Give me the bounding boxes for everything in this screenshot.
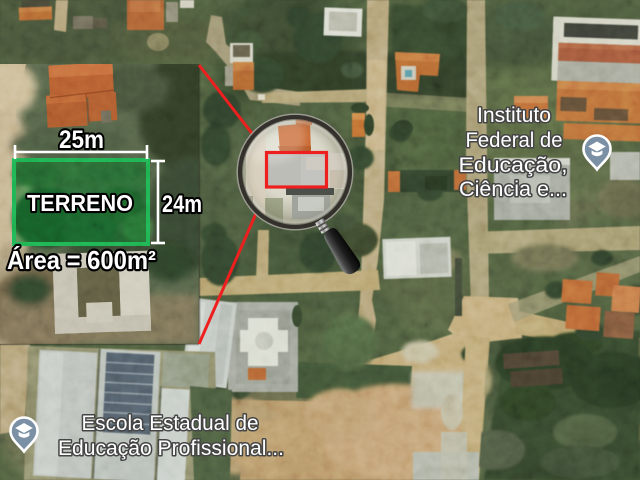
svg-text:Educação,: Educação, <box>459 153 568 177</box>
svg-text:Educação Profissional...: Educação Profissional... <box>58 436 284 460</box>
svg-text:24m: 24m <box>162 191 202 218</box>
svg-text:Escola Estadual de: Escola Estadual de <box>82 411 259 435</box>
svg-text:TERRENO: TERRENO <box>27 190 133 216</box>
svg-text:Área = 600m²: Área = 600m² <box>7 245 156 275</box>
svg-text:Ciência e...: Ciência e... <box>459 177 567 201</box>
svg-text:25m: 25m <box>59 126 104 154</box>
svg-text:Federal de: Federal de <box>466 128 563 152</box>
svg-text:Instituto: Instituto <box>477 103 551 127</box>
